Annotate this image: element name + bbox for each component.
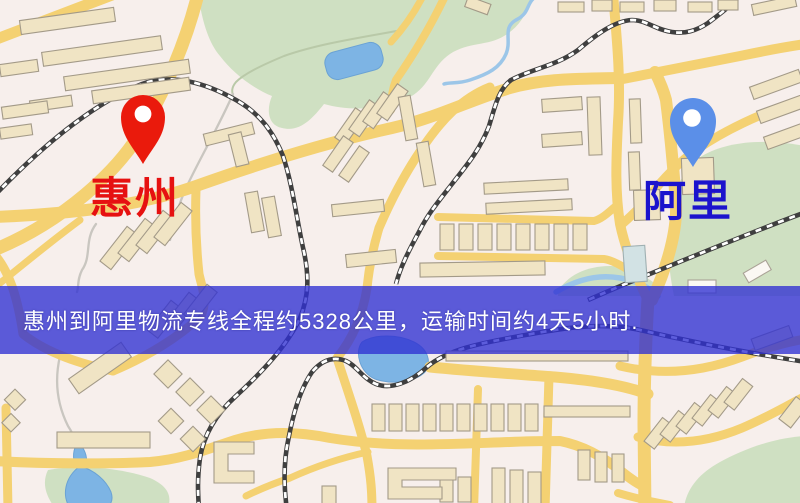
origin-pin-icon [117,92,171,170]
origin-label: 惠州 [90,178,180,221]
destination-pin-icon [666,96,722,174]
map-image: 惠州到阿里物流专线全程约5328公里，运输时间约4天5小时. 惠州 阿里 [0,0,800,503]
destination-label: 阿里 [643,181,733,224]
info-banner: 惠州到阿里物流专线全程约5328公里，运输时间约4天5小时. [0,286,800,354]
map-canvas [0,0,800,503]
info-banner-text: 惠州到阿里物流专线全程约5328公里，运输时间约4天5小时. [23,304,639,336]
